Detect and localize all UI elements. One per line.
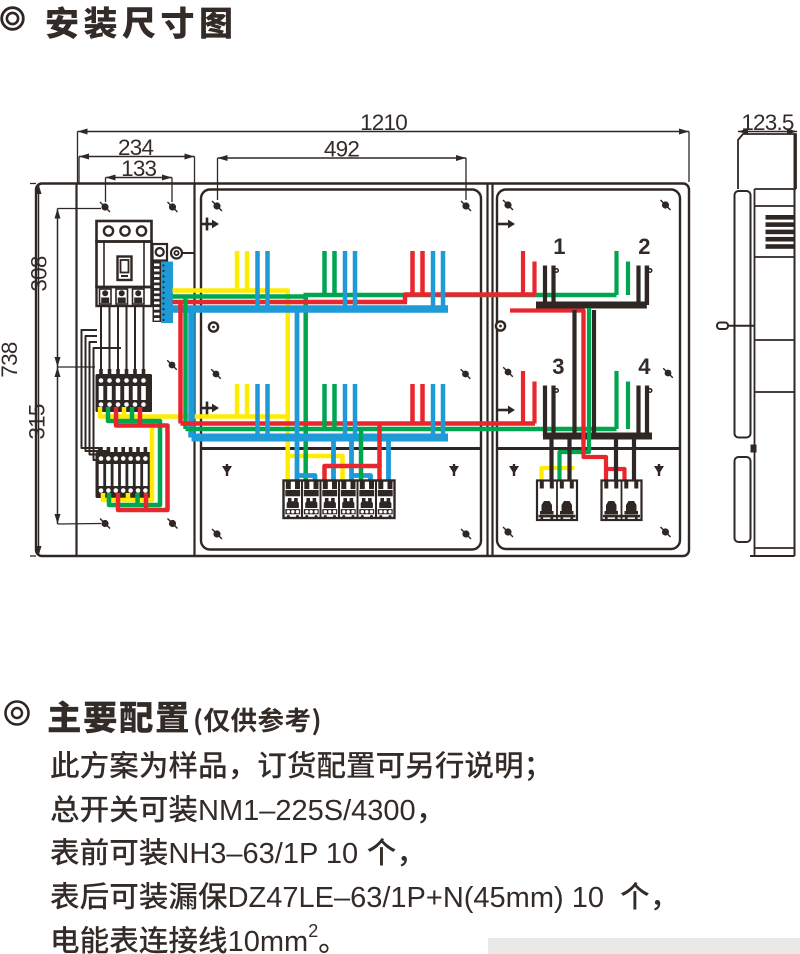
svg-text:2: 2: [638, 234, 650, 259]
svg-text:2: 2: [308, 921, 318, 941]
svg-text:1210: 1210: [360, 110, 407, 135]
svg-text:10mm: 10mm: [228, 926, 309, 954]
svg-text:133: 133: [121, 156, 156, 181]
svg-text:738: 738: [0, 342, 22, 377]
svg-text:3: 3: [552, 354, 564, 379]
svg-text:NM1–225S/4300: NM1–225S/4300: [198, 795, 416, 827]
svg-text:DZ47LE–63/1P+N(45mm) 10: DZ47LE–63/1P+N(45mm) 10: [228, 882, 604, 914]
svg-text:4: 4: [638, 354, 651, 379]
svg-text:NH3–63/1P 10: NH3–63/1P 10: [168, 838, 358, 870]
svg-text:123.5: 123.5: [741, 110, 794, 135]
svg-text:492: 492: [324, 136, 359, 161]
svg-text:308: 308: [27, 256, 52, 291]
svg-text:1: 1: [553, 234, 565, 259]
